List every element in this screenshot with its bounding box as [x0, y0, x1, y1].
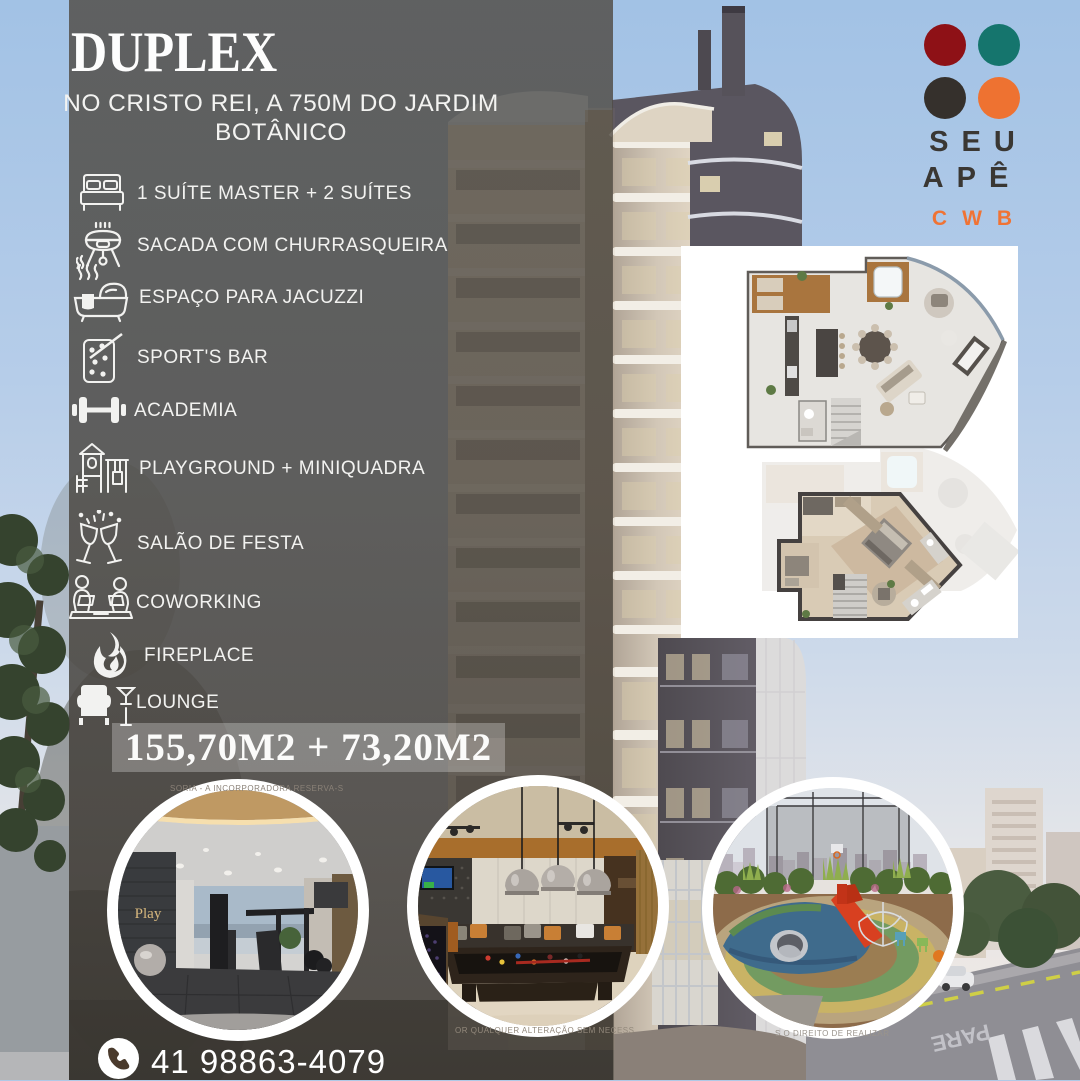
svg-text:Play: Play	[135, 906, 162, 922]
